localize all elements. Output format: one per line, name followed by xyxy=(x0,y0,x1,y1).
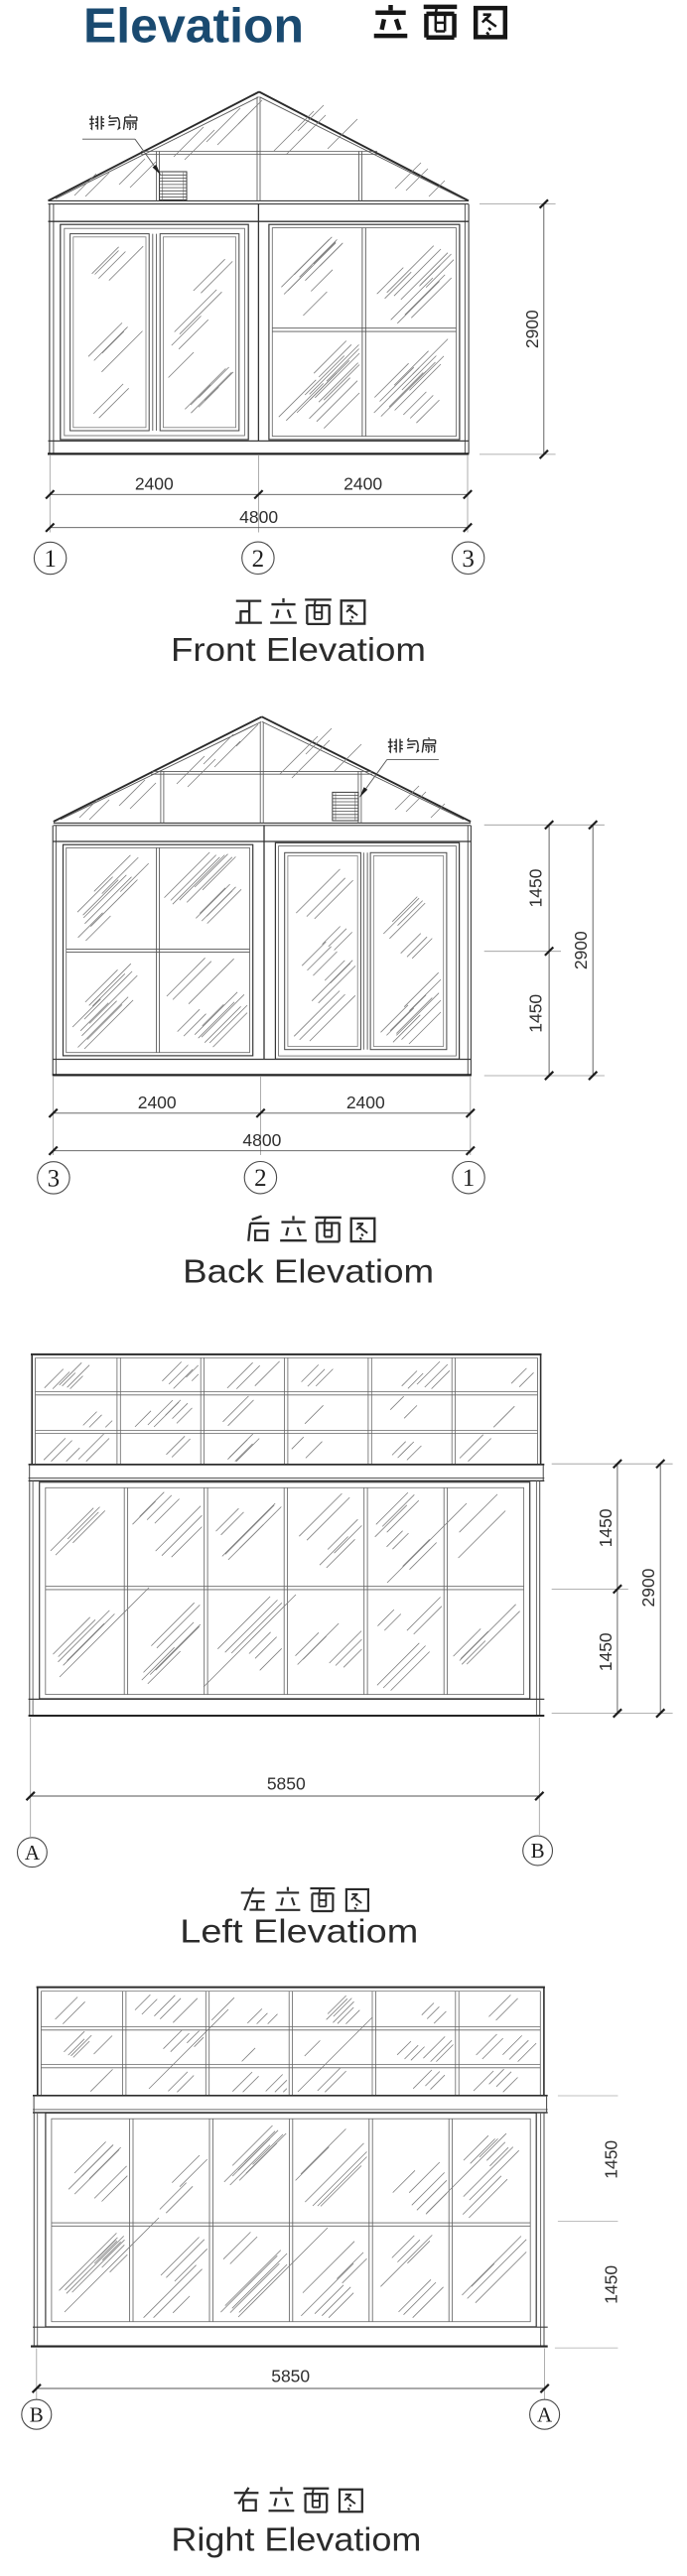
svg-text:Back Elevatiom: Back Elevatiom xyxy=(183,1254,434,1291)
svg-text:4800: 4800 xyxy=(239,507,278,527)
svg-text:B: B xyxy=(30,2402,44,2426)
svg-text:2400: 2400 xyxy=(138,1093,177,1112)
svg-text:Front Elevatiom: Front Elevatiom xyxy=(171,632,426,669)
svg-text:2900: 2900 xyxy=(571,931,591,969)
svg-text:1: 1 xyxy=(44,546,57,573)
svg-text:B: B xyxy=(531,1839,545,1863)
svg-text:1: 1 xyxy=(463,1165,476,1192)
svg-text:Elevation: Elevation xyxy=(83,0,304,54)
svg-text:1450: 1450 xyxy=(526,868,546,907)
svg-text:1450: 1450 xyxy=(601,2140,620,2179)
svg-text:2: 2 xyxy=(254,1165,267,1192)
svg-text:2400: 2400 xyxy=(343,474,382,494)
svg-text:1450: 1450 xyxy=(601,2265,620,2304)
svg-text:A: A xyxy=(25,1841,41,1865)
svg-text:1450: 1450 xyxy=(596,1508,616,1547)
svg-text:2900: 2900 xyxy=(638,1568,658,1607)
svg-text:1450: 1450 xyxy=(526,994,546,1033)
svg-text:Left Elevatiom: Left Elevatiom xyxy=(180,1913,418,1950)
svg-text:5850: 5850 xyxy=(267,1774,306,1794)
svg-text:3: 3 xyxy=(462,546,475,573)
svg-text:A: A xyxy=(537,2402,553,2426)
svg-text:4800: 4800 xyxy=(242,1130,281,1150)
svg-text:2900: 2900 xyxy=(522,310,542,348)
svg-text:2400: 2400 xyxy=(346,1093,385,1112)
svg-text:2: 2 xyxy=(252,546,265,573)
svg-text:Right Elevatiom: Right Elevatiom xyxy=(171,2522,421,2559)
svg-text:1450: 1450 xyxy=(596,1632,616,1671)
svg-text:5850: 5850 xyxy=(271,2367,310,2386)
svg-text:3: 3 xyxy=(48,1165,61,1192)
svg-text:2400: 2400 xyxy=(135,474,174,494)
